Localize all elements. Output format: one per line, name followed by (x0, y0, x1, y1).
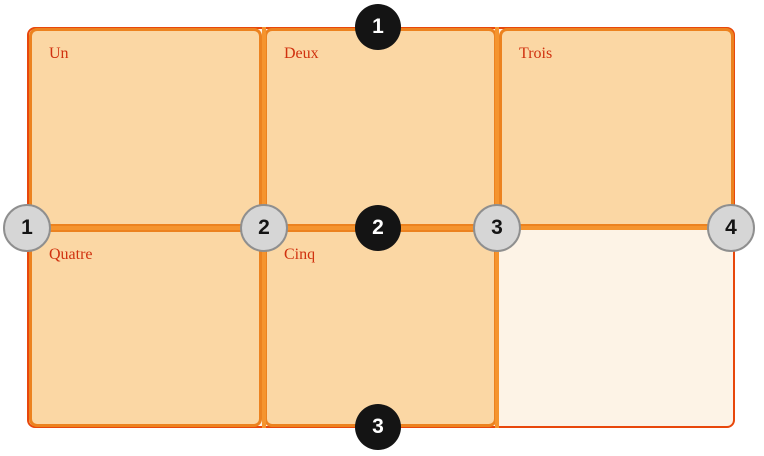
column-line-marker-2-number: 2 (258, 216, 270, 240)
row-line-marker-2-number: 2 (372, 216, 384, 240)
row-line-marker-1: 1 (355, 4, 401, 50)
column-line-marker-1: 1 (3, 204, 51, 252)
column-line-marker-4: 4 (707, 204, 755, 252)
cell-label-quatre: Quatre (49, 246, 93, 264)
column-line-marker-2: 2 (240, 204, 288, 252)
column-line-marker-1-number: 1 (21, 216, 33, 240)
grid-diagram: Un Deux Trois Quatre Cinq 1 2 3 1 2 3 4 (0, 0, 764, 456)
grid-cell-un: Un (29, 28, 262, 227)
grid-cell-deux: Deux (264, 28, 497, 227)
cell-label-trois: Trois (519, 45, 552, 63)
grid-cell-trois: Trois (499, 28, 734, 227)
cell-label-un: Un (49, 45, 69, 63)
cell-label-cinq: Cinq (284, 246, 315, 264)
row-line-marker-3-number: 3 (372, 415, 384, 439)
cell-label-deux: Deux (284, 45, 319, 63)
column-line-marker-3-number: 3 (491, 216, 503, 240)
row-line-marker-2: 2 (355, 205, 401, 251)
row-line-marker-3: 3 (355, 404, 401, 450)
column-line-marker-3: 3 (473, 204, 521, 252)
grid-cell-quatre: Quatre (29, 229, 262, 427)
grid-cell-cinq: Cinq (264, 229, 497, 427)
column-line-marker-4-number: 4 (725, 216, 737, 240)
row-line-marker-1-number: 1 (372, 15, 384, 39)
